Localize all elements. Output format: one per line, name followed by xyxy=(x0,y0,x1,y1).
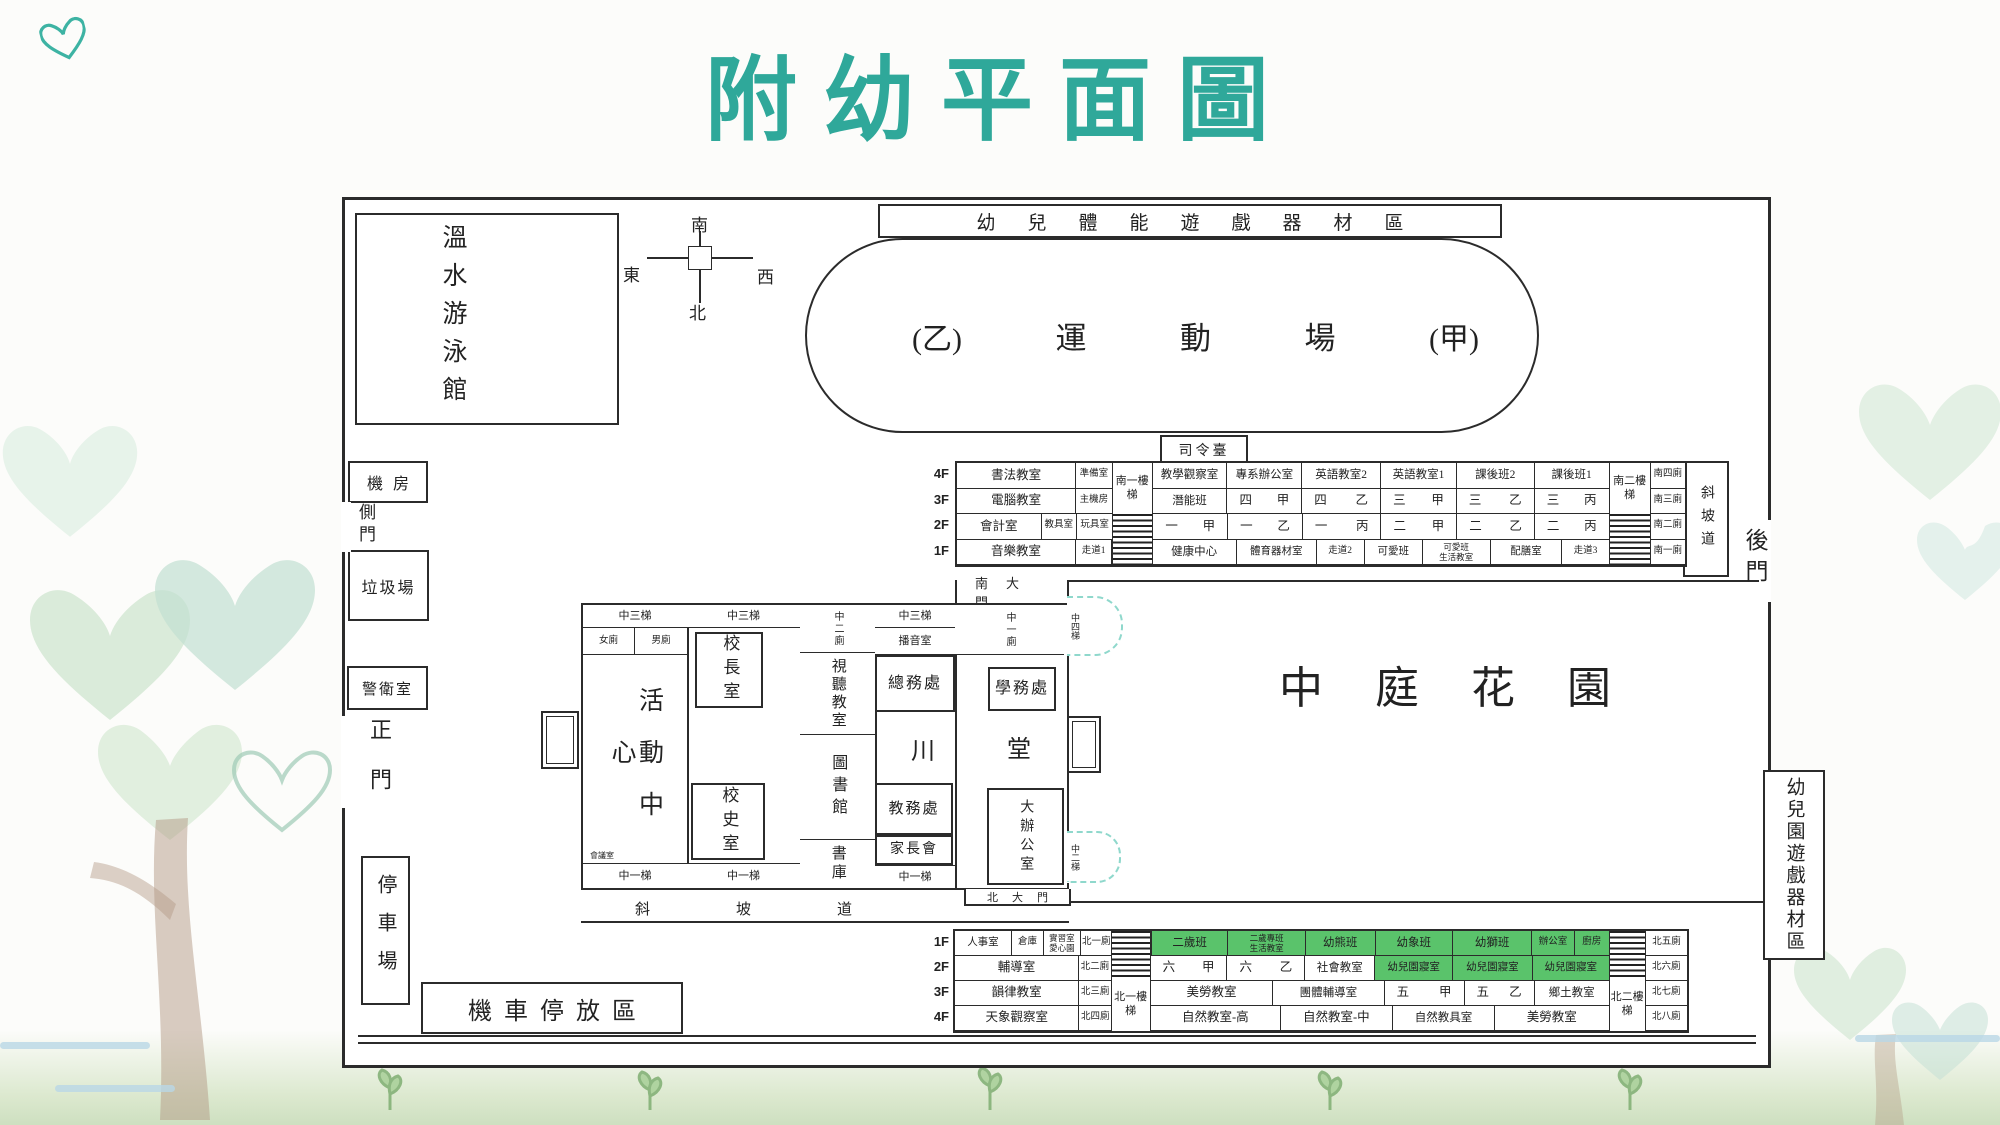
room-cell: 健康中心 xyxy=(1152,540,1237,565)
audio-visual-room: 視聽教室 xyxy=(800,653,875,735)
equipment-area-top-label: 幼兒體能遊戲器材區 xyxy=(944,208,1435,235)
south-building-table: 人事室 倉庫 實習室愛心園 北一廁 二歲班 二歲專班生活教室 幼熊班 幼象班 幼… xyxy=(953,929,1689,1033)
toilet-cell: 北五廁 xyxy=(1646,931,1687,955)
track-zone-a: (甲) xyxy=(1429,314,1479,358)
room-cell: 走道1 xyxy=(1076,540,1112,565)
stairway-north1-hatch xyxy=(1111,931,1151,979)
center-building: 中三梯 女廁 男廁 活動中心 會議室 中一梯 中三梯 校長室 校史室 中一梯 中… xyxy=(581,603,1069,890)
room-cell: 廚房 xyxy=(1575,931,1610,955)
room-cell: 可愛班 xyxy=(1365,540,1423,565)
school-history-room: 校史室 xyxy=(691,783,765,860)
room-cell: 美勞教室 xyxy=(1151,981,1273,1005)
room-cell: 自然教具室 xyxy=(1393,1006,1495,1030)
room-cell: 六乙 xyxy=(1227,956,1305,980)
room-cell: 六甲 xyxy=(1151,956,1228,980)
scooter-parking-label: 機車停放區 xyxy=(456,991,648,1026)
garbage-yard: 垃圾場 xyxy=(348,550,429,621)
room-cell: 鄉土教室 xyxy=(1535,981,1610,1005)
table-row-2f: 會計室 教具室 玩具室 一甲 一乙 一丙 二甲 二乙 二丙 南二廁 xyxy=(957,514,1685,540)
room-cell: 韻律教室 xyxy=(955,981,1079,1005)
stairway-center3: 中三梯 xyxy=(687,605,800,628)
room-cell: 三丙 xyxy=(1535,489,1610,514)
stairway-center2-bump: 中二梯 xyxy=(1067,831,1121,883)
floor-label: 3F xyxy=(911,979,949,1004)
stairway-center1: 中一梯 xyxy=(875,865,955,888)
toilet-cell: 南四廁 xyxy=(1651,463,1685,488)
student-affairs-office: 學務處 xyxy=(988,667,1056,711)
room-cell: 幼熊班 xyxy=(1306,931,1376,955)
table-row-2f: 輔導室 北二廁 六甲 六乙 社會教室 幼兒園寢室 幼兒園寢室 幼兒園寢室 北六廁 xyxy=(955,956,1687,981)
room-cell: 自然教室-高 xyxy=(1151,1006,1280,1030)
heart-decoration-right xyxy=(1845,350,2000,610)
toilet-male: 男廁 xyxy=(635,628,687,655)
compass-west: 西 xyxy=(757,263,774,288)
courtyard-garden: 中庭花園 xyxy=(1165,652,1725,716)
room-cell: 會計室 xyxy=(957,514,1042,539)
stairway-center4-bump: 中四梯 xyxy=(1067,596,1123,656)
large-office: 大辦公室 xyxy=(987,788,1064,885)
toilet-cell: 南三廁 xyxy=(1651,489,1685,514)
ramp-south-label: 斜坡道 xyxy=(635,898,938,919)
compass-south: 南 xyxy=(691,211,708,236)
room-cell: 電腦教室 xyxy=(957,489,1076,514)
toilet-center2: 中二廁 xyxy=(800,605,875,653)
room-cell: 倉庫 xyxy=(1012,931,1044,955)
ramp-south: 斜坡道 xyxy=(635,898,865,919)
room-cell: 主機房 xyxy=(1076,489,1112,514)
floor-label: 1F xyxy=(911,538,949,564)
room-cell: 社會教室 xyxy=(1305,956,1375,980)
room-cell: 走道3 xyxy=(1562,540,1609,565)
room-cell: 可愛班生活教室 xyxy=(1423,540,1491,565)
room-cell: 課後班2 xyxy=(1457,463,1535,488)
pool-building: 溫水游泳館 xyxy=(355,213,619,425)
room-cell: 一丙 xyxy=(1303,514,1382,539)
room-cell: 天象觀察室 xyxy=(955,1006,1079,1030)
stairway-center3: 中三梯 xyxy=(875,605,955,628)
room-cell: 三甲 xyxy=(1381,489,1457,514)
ramp-northeast-label: 斜坡道 xyxy=(1696,485,1716,554)
north-gate-label: 北大門 xyxy=(973,889,1062,905)
blue-stroke-decoration xyxy=(55,1085,175,1092)
table-row-3f: 電腦教室 主機房 潛能班 四甲 四乙 三甲 三乙 三丙 南三廁 xyxy=(957,489,1685,515)
tree-heart-decoration-left xyxy=(20,560,360,1125)
floor-label: 2F xyxy=(911,512,949,538)
toilet-cell: 南二廁 xyxy=(1651,514,1685,539)
stairway-north2-hatch xyxy=(1609,931,1646,979)
room-cell: 美勞教室 xyxy=(1495,1006,1610,1030)
west-porch xyxy=(541,711,579,769)
guard-room: 警衛室 xyxy=(347,666,428,710)
room-cell: 幼兒園寢室 xyxy=(1375,956,1453,980)
main-gate-opening xyxy=(341,716,351,808)
east-porch xyxy=(1067,716,1101,773)
room-cell: 自然教室-中 xyxy=(1281,1006,1394,1030)
table-row-3f: 韻律教室 北三廁 美勞教室 團體輔導室 五甲 五乙 鄉土教室 北七廁 xyxy=(955,981,1687,1006)
floor-label: 1F xyxy=(911,929,949,954)
room-cell: 辦公室 xyxy=(1532,931,1574,955)
stairway-south1-hatch xyxy=(1112,514,1153,565)
hall-label-chuan: 川 xyxy=(911,731,935,766)
room-cell: 書法教室 xyxy=(957,463,1076,488)
table-row-1f: 人事室 倉庫 實習室愛心園 北一廁 二歲班 二歲專班生活教室 幼熊班 幼象班 幼… xyxy=(955,931,1687,956)
floor-label: 4F xyxy=(911,461,949,487)
ramp-south-wall xyxy=(581,921,1069,923)
blue-stroke-decoration xyxy=(0,1042,150,1049)
room-cell: 玩具室 xyxy=(1077,514,1113,539)
table-row-1f: 音樂教室 走道1 健康中心 體育器材室 走道2 可愛班 可愛班生活教室 配膳室 … xyxy=(957,540,1685,566)
floor-label: 4F xyxy=(911,1004,949,1029)
room-cell: 英語教室2 xyxy=(1302,463,1381,488)
north-gate-strip: 北大門 xyxy=(964,889,1071,906)
room-cell: 準備室 xyxy=(1076,463,1112,488)
room-cell: 一乙 xyxy=(1228,514,1303,539)
track-zone-b: (乙) xyxy=(912,314,962,358)
equipment-area-right: 幼兒園遊戲器材區 xyxy=(1763,770,1825,960)
track-char: 場 xyxy=(1304,313,1335,358)
activity-center: 活動中心 xyxy=(611,667,659,863)
toilet-cell: 北七廁 xyxy=(1646,981,1687,1005)
car-park: 停車場 xyxy=(361,856,410,1005)
room-cell: 配膳室 xyxy=(1491,540,1563,565)
principal-office: 校長室 xyxy=(695,632,763,708)
blue-stroke-decoration xyxy=(1855,1035,2000,1042)
room-cell: 四甲 xyxy=(1227,489,1302,514)
north-floor-labels: 4F 3F 2F 1F xyxy=(911,461,949,563)
pool-label: 溫水游泳館 xyxy=(434,224,470,414)
room-cell: 實習室愛心園 xyxy=(1044,931,1080,955)
stairway-north1: 北一樓梯 xyxy=(1111,979,1151,1031)
room-cell: 二甲 xyxy=(1381,514,1457,539)
room-cell: 潛能班 xyxy=(1153,489,1228,514)
meeting-room: 會議室 xyxy=(585,850,619,863)
running-track: (乙) 運 動 場 (甲) xyxy=(805,238,1539,433)
room-cell: 四乙 xyxy=(1302,489,1381,514)
heart-decoration-left-mid xyxy=(0,420,140,550)
page-title: 附幼平面圖 xyxy=(0,26,2000,159)
podium-label: 司令臺 xyxy=(1179,440,1230,460)
stairway-south1: 南一樓梯 xyxy=(1112,463,1153,514)
toilet-cell: 北一廁 xyxy=(1081,931,1113,955)
room-cell: 走道2 xyxy=(1317,540,1365,565)
academic-affairs-office: 教務處 xyxy=(875,783,953,835)
side-gate-label: 側門 xyxy=(353,503,378,547)
room-cell: 幼獅班 xyxy=(1453,931,1532,955)
room-cell: 團體輔導室 xyxy=(1273,981,1384,1005)
table-row-4f: 天象觀察室 北四廁 自然教室-高 自然教室-中 自然教具室 美勞教室 北八廁 xyxy=(955,1006,1687,1031)
guard-room-label: 警衛室 xyxy=(362,678,413,699)
room-cell: 教具室 xyxy=(1042,514,1077,539)
toilet-female: 女廁 xyxy=(583,628,635,655)
room-cell: 教學觀察室 xyxy=(1153,463,1228,488)
toilet-cell: 北八廁 xyxy=(1646,1006,1687,1030)
room-cell: 人事室 xyxy=(955,931,1012,955)
south-gate-strip: 南大門 xyxy=(955,580,1069,603)
floor-label: 3F xyxy=(911,487,949,513)
back-gate-label: 後門 xyxy=(1737,528,1771,590)
room-cell: 三乙 xyxy=(1457,489,1535,514)
ramp-northeast: 斜坡道 xyxy=(1683,461,1729,577)
stairway-center1: 中一梯 xyxy=(687,863,800,888)
toilet-cell: 北二廁 xyxy=(1079,956,1112,980)
room-cell: 幼兒園寢室 xyxy=(1453,956,1533,980)
toilet-cell: 南一廁 xyxy=(1651,540,1685,565)
room-cell: 二乙 xyxy=(1457,514,1535,539)
track-char: 運 xyxy=(1055,313,1086,358)
room-cell: 五乙 xyxy=(1465,981,1535,1005)
main-gate-label: 正門 xyxy=(363,718,395,818)
general-affairs-office: 總務處 xyxy=(875,655,955,712)
compass-north: 北 xyxy=(689,299,706,324)
room-cell: 幼象班 xyxy=(1376,931,1453,955)
room-cell: 體育器材室 xyxy=(1237,540,1317,565)
book-stack-room: 書庫 xyxy=(800,840,875,888)
sprout-decoration-row xyxy=(340,1060,1760,1120)
south-floor-labels: 1F 2F 3F 4F xyxy=(911,929,949,1029)
room-cell: 一甲 xyxy=(1153,514,1228,539)
courtyard-garden-label: 中庭花園 xyxy=(1227,664,1663,713)
room-cell: 二歲班 xyxy=(1152,931,1228,955)
car-park-label: 停車場 xyxy=(371,874,400,988)
table-row-4f: 書法教室 準備室 教學觀察室 專系辦公室 英語教室2 英語教室1 課後班2 課後… xyxy=(957,463,1685,489)
room-cell: 輔導室 xyxy=(955,956,1079,980)
toilet-cell: 北六廁 xyxy=(1646,956,1687,980)
room-cell: 英語教室1 xyxy=(1381,463,1457,488)
room-cell: 幼兒園寢室 xyxy=(1533,956,1610,980)
room-cell: 二歲專班生活教室 xyxy=(1228,931,1305,955)
hall-label-tang: 堂 xyxy=(1007,729,1031,764)
toilet-cell: 北三廁 xyxy=(1079,981,1112,1005)
stairway-center1: 中一梯 xyxy=(583,863,687,888)
room-cell: 課後班1 xyxy=(1535,463,1610,488)
toilet-center1: 中一廁 xyxy=(955,605,1064,655)
equipment-area-top: 幼兒體能遊戲器材區 xyxy=(878,204,1502,238)
stairway-center3: 中三梯 xyxy=(583,605,687,628)
parents-association: 家長會 xyxy=(875,835,953,865)
stairway-south2-hatch xyxy=(1609,514,1651,565)
courtyard-bottom-wall xyxy=(1067,901,1766,903)
room-cell: 音樂教室 xyxy=(957,540,1076,565)
room-cell: 專系辦公室 xyxy=(1227,463,1302,488)
south-boundary-wall xyxy=(358,1035,1756,1044)
floor-plan-map: 幼兒體能遊戲器材區 溫水游泳館 南 東 西 北 (乙) 運 動 場 (甲) 司令… xyxy=(342,197,1771,1068)
broadcast-room: 播音室 xyxy=(875,628,955,655)
track-char: 動 xyxy=(1180,313,1211,358)
north-building-table: 書法教室 準備室 教學觀察室 專系辦公室 英語教室2 英語教室1 課後班2 課後… xyxy=(955,461,1687,567)
scooter-parking-area: 機車停放區 xyxy=(421,982,683,1034)
compass-rose xyxy=(688,246,712,270)
slide: { "title": "附幼平面圖", "colors": {"accent":… xyxy=(0,0,2000,1125)
stairway-south2: 南二樓梯 xyxy=(1609,463,1651,514)
compass-east: 東 xyxy=(623,261,640,286)
side-gate-opening xyxy=(341,502,351,552)
room-cell: 二丙 xyxy=(1535,514,1610,539)
machine-room: 機房 xyxy=(348,461,428,503)
stairway-north2: 北二樓梯 xyxy=(1609,979,1646,1031)
room-cell: 五甲 xyxy=(1385,981,1465,1005)
garbage-yard-label: 垃圾場 xyxy=(361,574,415,598)
library: 圖書館 xyxy=(800,735,875,840)
equipment-area-right-label: 幼兒園遊戲器材區 xyxy=(1781,777,1808,953)
machine-room-label: 機房 xyxy=(357,470,419,494)
courtyard-top-wall xyxy=(955,580,1766,582)
floor-label: 2F xyxy=(911,954,949,979)
compass: 南 東 西 北 xyxy=(635,205,765,320)
toilet-cell: 北四廁 xyxy=(1079,1006,1112,1030)
